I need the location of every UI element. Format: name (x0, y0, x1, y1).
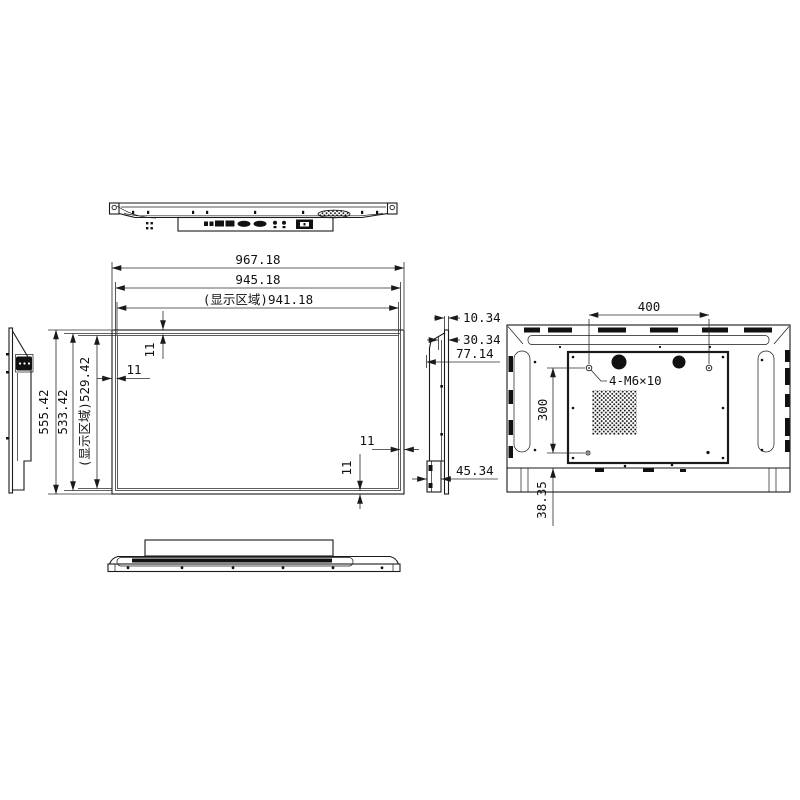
usb-port-icon (226, 221, 235, 227)
vga-port-icon (238, 221, 251, 227)
dim-total-depth: 77.14 (456, 346, 494, 361)
bezel-dim-bottom: 11 (339, 460, 354, 475)
dsub-port-icon (254, 221, 267, 227)
display-area (118, 336, 399, 489)
right-side-view (427, 330, 449, 494)
io-ports (204, 220, 313, 230)
dim-height-outer: 555.42 (36, 389, 51, 434)
hanging-hole (673, 356, 686, 369)
dim-height-frame: 533.42 (55, 389, 70, 434)
dim-height-display: (显示区域)529.42 (77, 357, 92, 467)
top-view (110, 203, 398, 231)
hanging-hole (612, 355, 627, 370)
dim-glass-depth: 10.34 (463, 310, 501, 325)
technical-drawing: 967.18 945.18 (显示区域)941.18 555.42 533.42… (0, 0, 800, 800)
dim-vesa-width: 400 (638, 299, 661, 314)
vent-slots-right (785, 350, 790, 452)
dim-vesa-height: 300 (535, 399, 550, 422)
rear-right-bevel (758, 351, 774, 452)
vesa-hole (706, 451, 709, 454)
dim-width-outer: 967.18 (235, 252, 280, 267)
bezel-dim-left: 11 (126, 362, 141, 377)
left-side-view (6, 328, 33, 493)
top-view-right-endcap (388, 203, 398, 214)
bottom-gasket-strip (132, 559, 332, 563)
bezel-dim-top: 11 (142, 342, 157, 357)
dim-front-depth: 30.34 (463, 332, 501, 347)
vent-slots-top (524, 328, 772, 333)
dim-width-display: (显示区域)941.18 (203, 292, 313, 307)
usb-port-icon (215, 221, 224, 227)
dim-bottom-box-depth: 45.34 (456, 463, 494, 478)
bottom-screws (127, 566, 384, 569)
bezel-dim-right: 11 (359, 433, 374, 448)
dim-bottom-offset: 38.35 (534, 481, 549, 519)
speaker-grille-icon (318, 210, 350, 218)
front-inner-frame (116, 334, 401, 491)
vent-grid (592, 390, 637, 435)
label-mount-holes: 4-M6×10 (609, 373, 662, 388)
dim-width-frame: 945.18 (235, 272, 280, 287)
mount-holes-leader (591, 370, 607, 381)
side-view-dimensions: 10.34 30.34 77.14 45.34 (412, 310, 501, 479)
bottom-connector-housing (145, 540, 333, 556)
vent-slots-left (509, 356, 514, 458)
bottom-view (108, 540, 400, 572)
bottom-strip-marks (595, 469, 686, 473)
top-view-left-endcap (110, 203, 120, 214)
front-view-dimensions: 967.18 945.18 (显示区域)941.18 555.42 533.42… (36, 252, 419, 509)
rear-left-bevel (514, 351, 530, 452)
leader-curve (117, 206, 156, 218)
rear-top-bevel (528, 336, 769, 345)
